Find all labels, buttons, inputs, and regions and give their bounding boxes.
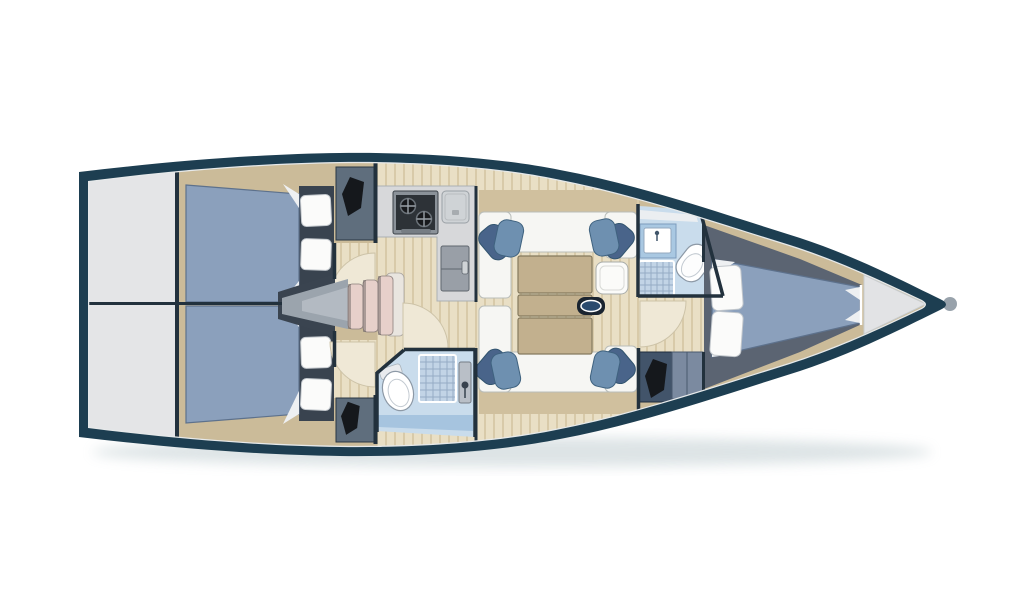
- settee-backrest: [479, 390, 637, 414]
- step-shadow: [378, 276, 381, 335]
- burner: [401, 199, 416, 214]
- stove-handle: [401, 229, 431, 233]
- burner: [417, 212, 432, 227]
- double-berth: [186, 306, 299, 423]
- settee-backrest: [479, 190, 637, 214]
- sink-drain: [452, 210, 459, 215]
- shower-column: [459, 362, 471, 403]
- shower-grate: [419, 355, 456, 402]
- table-handle: [581, 301, 601, 312]
- pillow: [710, 311, 744, 357]
- step-shadow: [363, 280, 366, 332]
- saloon-table: [518, 256, 605, 354]
- pillow: [300, 378, 332, 411]
- yacht-floor-plan-page: Sailing yacht interior layout — top-view…: [0, 0, 1024, 600]
- table-leaf: [518, 318, 592, 354]
- pillow: [300, 336, 331, 368]
- pillow: [710, 265, 744, 311]
- shower-grate: [639, 261, 674, 296]
- steps: [348, 276, 393, 335]
- pillow: [300, 194, 332, 227]
- side-table: [596, 262, 628, 294]
- shower-head: [462, 382, 469, 389]
- fridge-handle: [462, 261, 468, 274]
- fridge: [441, 246, 469, 291]
- table-leaf: [518, 256, 592, 293]
- double-berth: [186, 185, 299, 302]
- interior: [70, 150, 960, 460]
- heads-sink: [640, 224, 676, 258]
- step-shadow: [348, 284, 351, 329]
- yacht-floor-plan: Sailing yacht interior layout — top-view…: [0, 0, 1024, 600]
- pillow: [300, 238, 331, 270]
- galley-sink: [442, 191, 469, 223]
- stove: [393, 191, 438, 234]
